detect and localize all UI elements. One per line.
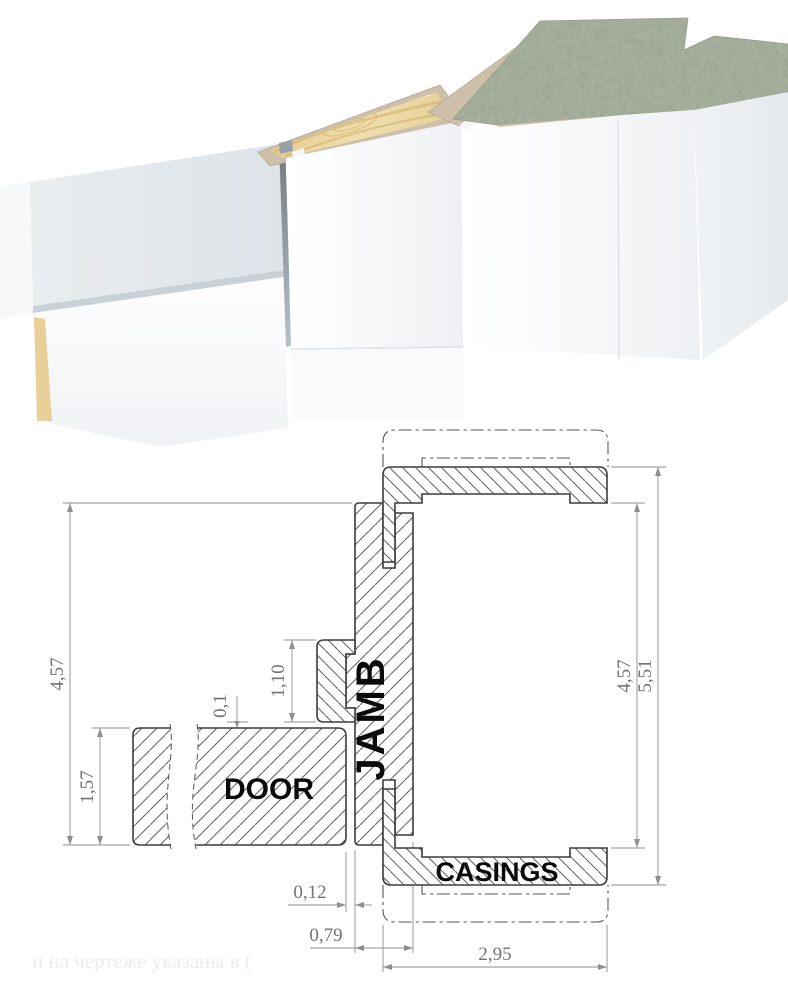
door-break-lines — [167, 724, 198, 849]
dim-door-clearance: 0,12 — [293, 882, 326, 903]
casing-side-face — [694, 92, 788, 360]
door-label: DOOR — [224, 773, 314, 806]
dim-opening-right: 4,57 — [614, 659, 635, 692]
render-3d-cutaway — [0, 10, 788, 447]
jamb-front-lower — [291, 347, 464, 420]
render-door-leaf — [0, 142, 292, 447]
dim-jamb-length-left: 4,57 — [47, 657, 68, 690]
dim-overall-right: 5,51 — [635, 659, 656, 692]
door-leaf-end-face — [0, 182, 33, 319]
dim-door-gap: 0,1 — [210, 694, 231, 718]
dim-casing-width: 2,95 — [478, 944, 511, 965]
casing-board-seam — [618, 121, 619, 358]
wall-phantom-step-top — [422, 458, 570, 467]
wall-phantom-outline-top — [383, 430, 608, 467]
dim-jamb-thickness: 0,79 — [309, 925, 342, 946]
render-jamb-block — [258, 85, 466, 420]
dim-stop-height: 1,10 — [268, 664, 289, 697]
door-section-part-left — [133, 728, 171, 845]
door-frame-illustration: DOOR JAMB CASINGS 4,57 1,57 1,10 0,1 0,1… — [0, 0, 788, 990]
casing-front-face — [466, 110, 700, 360]
dim-door-thickness: 1,57 — [77, 770, 98, 803]
casings-label: CASINGS — [435, 857, 558, 887]
wall-phantom-outline-bottom — [383, 885, 608, 922]
watermark-text: и на чертеже указаны в ( — [32, 949, 252, 973]
jamb-label: JAMB — [349, 655, 393, 780]
illustration-canvas: DOOR JAMB CASINGS 4,57 1,57 1,10 0,1 0,1… — [0, 0, 788, 990]
render-wall-casings — [428, 10, 788, 360]
top-casing-section — [383, 467, 607, 562]
jamb-front-face — [286, 121, 463, 349]
technical-drawing: DOOR JAMB CASINGS 4,57 1,57 1,10 0,1 0,1… — [32, 430, 666, 973]
